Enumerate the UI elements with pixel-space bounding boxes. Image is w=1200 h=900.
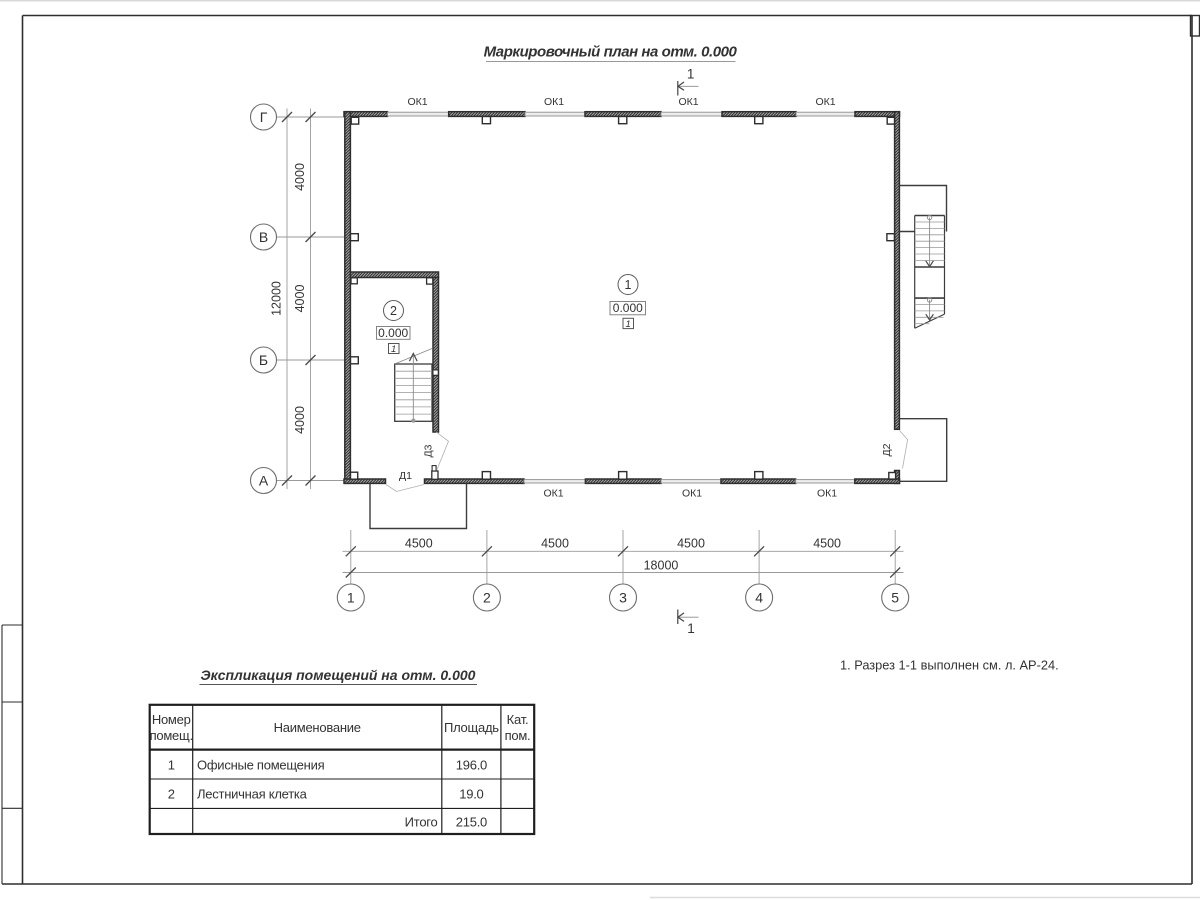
- svg-text:ОК1: ОК1: [682, 488, 702, 500]
- svg-text:помещ.: помещ.: [150, 728, 193, 743]
- svg-text:1: 1: [626, 319, 631, 330]
- svg-text:ОК1: ОК1: [815, 96, 835, 108]
- svg-text:3: 3: [619, 590, 627, 606]
- svg-text:Д3: Д3: [423, 444, 435, 457]
- svg-text:2: 2: [483, 590, 491, 606]
- svg-text:0.000: 0.000: [613, 301, 643, 315]
- svg-text:ОК1: ОК1: [678, 96, 698, 108]
- svg-text:Д2: Д2: [881, 443, 893, 456]
- svg-text:4500: 4500: [541, 537, 569, 551]
- svg-text:4500: 4500: [677, 537, 705, 551]
- svg-text:А: А: [259, 473, 269, 489]
- svg-text:5: 5: [891, 590, 899, 606]
- svg-text:215.0: 215.0: [456, 815, 487, 830]
- svg-text:1: 1: [687, 67, 695, 82]
- svg-text:Г: Г: [260, 109, 268, 125]
- svg-text:Маркировочный план на отм. 0.0: Маркировочный план на отм. 0.000: [484, 44, 738, 61]
- svg-text:1: 1: [687, 621, 695, 636]
- svg-text:0.000: 0.000: [378, 326, 408, 340]
- svg-text:2: 2: [168, 787, 175, 802]
- svg-text:4500: 4500: [405, 537, 433, 551]
- svg-text:ОК1: ОК1: [544, 96, 564, 108]
- svg-text:196.0: 196.0: [456, 757, 487, 772]
- svg-text:ОК1: ОК1: [407, 96, 427, 108]
- svg-text:ОК1: ОК1: [543, 488, 563, 500]
- svg-text:1: 1: [168, 757, 175, 772]
- svg-text:пом.: пом.: [505, 728, 531, 743]
- svg-text:Кат.: Кат.: [507, 712, 529, 727]
- svg-text:Экспликация помещений на отм.: Экспликация помещений на отм. 0.000: [201, 667, 476, 683]
- svg-text:4500: 4500: [813, 537, 841, 551]
- svg-text:4000: 4000: [293, 406, 307, 434]
- svg-text:1: 1: [625, 278, 632, 292]
- svg-text:4: 4: [755, 590, 763, 606]
- svg-text:Номер: Номер: [152, 712, 191, 727]
- svg-text:1. Разрез 1-1 выполнен см. л.: 1. Разрез 1-1 выполнен см. л. АР-24.: [840, 658, 1059, 673]
- svg-text:19.0: 19.0: [459, 787, 483, 802]
- svg-text:Д1: Д1: [399, 470, 412, 482]
- svg-text:Итого: Итого: [405, 815, 438, 830]
- svg-text:2: 2: [390, 304, 397, 318]
- svg-text:ОК1: ОК1: [817, 488, 837, 500]
- svg-text:12000: 12000: [270, 281, 284, 316]
- svg-text:Офисные помещения: Офисные помещения: [197, 757, 325, 772]
- svg-text:1: 1: [347, 590, 355, 606]
- svg-text:18000: 18000: [644, 559, 679, 573]
- svg-text:4000: 4000: [293, 163, 307, 191]
- svg-text:Наименование: Наименование: [274, 720, 361, 735]
- svg-text:1: 1: [391, 344, 396, 355]
- svg-text:Б: Б: [259, 352, 268, 368]
- svg-text:4000: 4000: [293, 285, 307, 313]
- svg-text:Площадь: Площадь: [444, 720, 499, 735]
- svg-text:В: В: [259, 229, 268, 245]
- svg-text:Лестничная клетка: Лестничная клетка: [197, 787, 308, 802]
